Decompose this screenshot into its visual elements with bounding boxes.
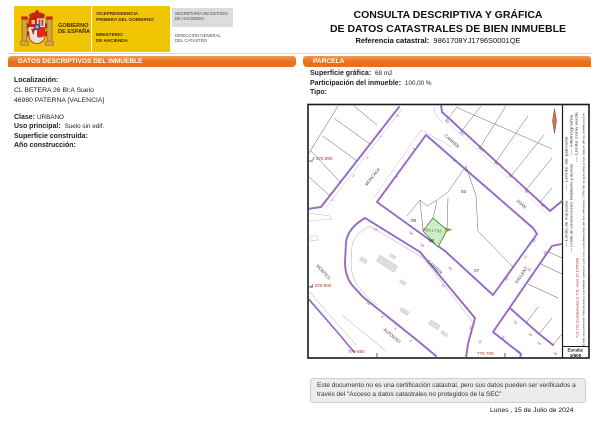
svg-text:8: 8 (380, 315, 384, 319)
svg-text:08: 08 (429, 238, 435, 243)
svg-text:6: 6 (393, 327, 397, 331)
svg-text:22: 22 (477, 339, 482, 344)
svg-text:12: 12 (440, 283, 446, 289)
svg-text:— Límite de parcela: — Límite de parcela (565, 137, 569, 190)
svg-text:CARRER: CARRER (426, 259, 443, 275)
svg-text:5: 5 (365, 156, 369, 160)
svg-text:43: 43 (532, 238, 537, 243)
svg-text:10: 10 (552, 351, 558, 357)
svg-text:13: 13 (372, 227, 378, 233)
svg-text:MONCADA: MONCADA (364, 167, 381, 187)
svg-text:JOAN: JOAN (515, 198, 527, 210)
svg-text:Este documento electrónico con: Este documento electrónico contiene anex… (582, 113, 586, 346)
svg-text:779 650: 779 650 (348, 349, 365, 354)
svg-text:779 700: 779 700 (477, 351, 494, 356)
svg-text:52: 52 (459, 131, 465, 137)
svg-text:24: 24 (501, 335, 506, 340)
svg-text:20: 20 (512, 320, 518, 326)
svg-text:1/600: 1/600 (570, 353, 582, 358)
svg-text:9: 9 (395, 114, 399, 118)
svg-text:4 375 900: 4 375 900 (311, 283, 332, 288)
svg-text:10: 10 (365, 301, 371, 307)
svg-text:03: 03 (461, 189, 467, 194)
svg-text:— Límite de construcciones: — Límite de construcciones (570, 202, 574, 252)
svg-text:51: 51 (451, 158, 457, 164)
svg-text:18: 18 (527, 332, 533, 338)
svg-text:38: 38 (543, 250, 548, 255)
svg-text:47: 47 (505, 276, 510, 281)
svg-text:713.732 Coordenadas U.T.M. Hus: 713.732 Coordenadas U.T.M. Huso 30 ETRS8… (576, 258, 580, 338)
svg-text:36: 36 (527, 267, 532, 272)
svg-text:26: 26 (419, 243, 425, 249)
svg-text:MONTES: MONTES (315, 263, 331, 280)
svg-text:46: 46 (539, 203, 545, 209)
svg-text:07: 07 (474, 268, 480, 273)
svg-text:66: 66 (408, 231, 414, 237)
svg-text:41: 41 (523, 254, 528, 259)
svg-text:Escala:: Escala: (567, 348, 584, 353)
svg-text:— Límite de manzana: — Límite de manzana (565, 201, 569, 247)
svg-text:54A: 54A (477, 146, 485, 153)
svg-text:09: 09 (411, 218, 417, 223)
svg-text:16: 16 (536, 341, 542, 347)
svg-text:— Hidrografía: — Hidrografía (570, 115, 574, 155)
svg-text:4: 4 (408, 339, 412, 343)
svg-text:Mobiliario y aceras: Mobiliario y aceras (570, 164, 574, 200)
svg-text:55: 55 (444, 119, 450, 125)
svg-text:4 375 950: 4 375 950 (312, 156, 333, 161)
svg-text:ALFONSO: ALFONSO (382, 327, 402, 345)
svg-text:— Límite zona verde: — Límite zona verde (575, 112, 579, 162)
svg-text:7: 7 (378, 135, 382, 139)
svg-text:34: 34 (447, 266, 453, 272)
